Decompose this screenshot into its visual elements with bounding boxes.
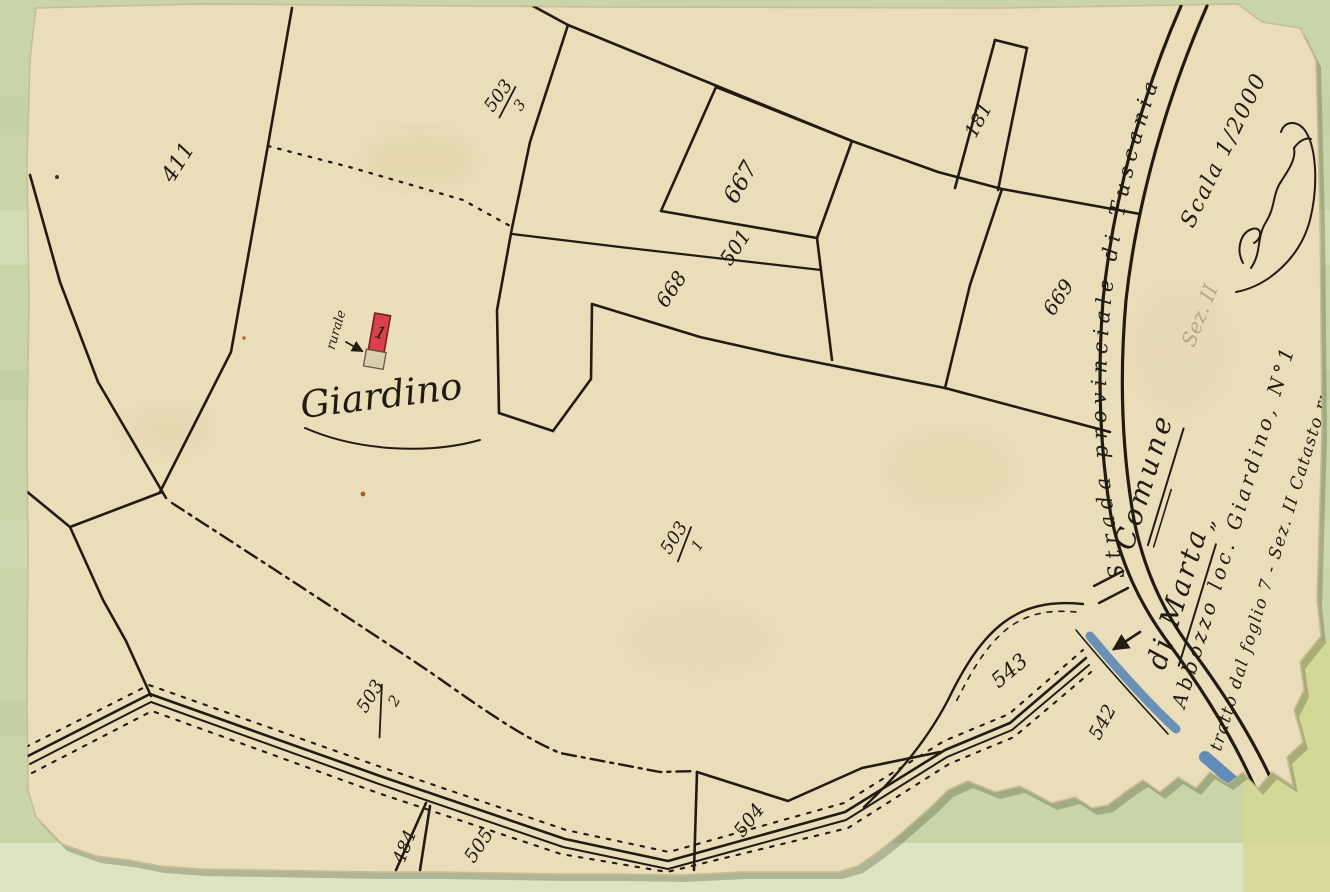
- building-base-block: [363, 349, 386, 369]
- cadastral-map-scan: 1 411 667 501 668 181 669 543 542 504 50…: [0, 0, 1330, 892]
- map-canvas: 1 411 667 501 668 181 669 543 542 504 50…: [0, 0, 1330, 892]
